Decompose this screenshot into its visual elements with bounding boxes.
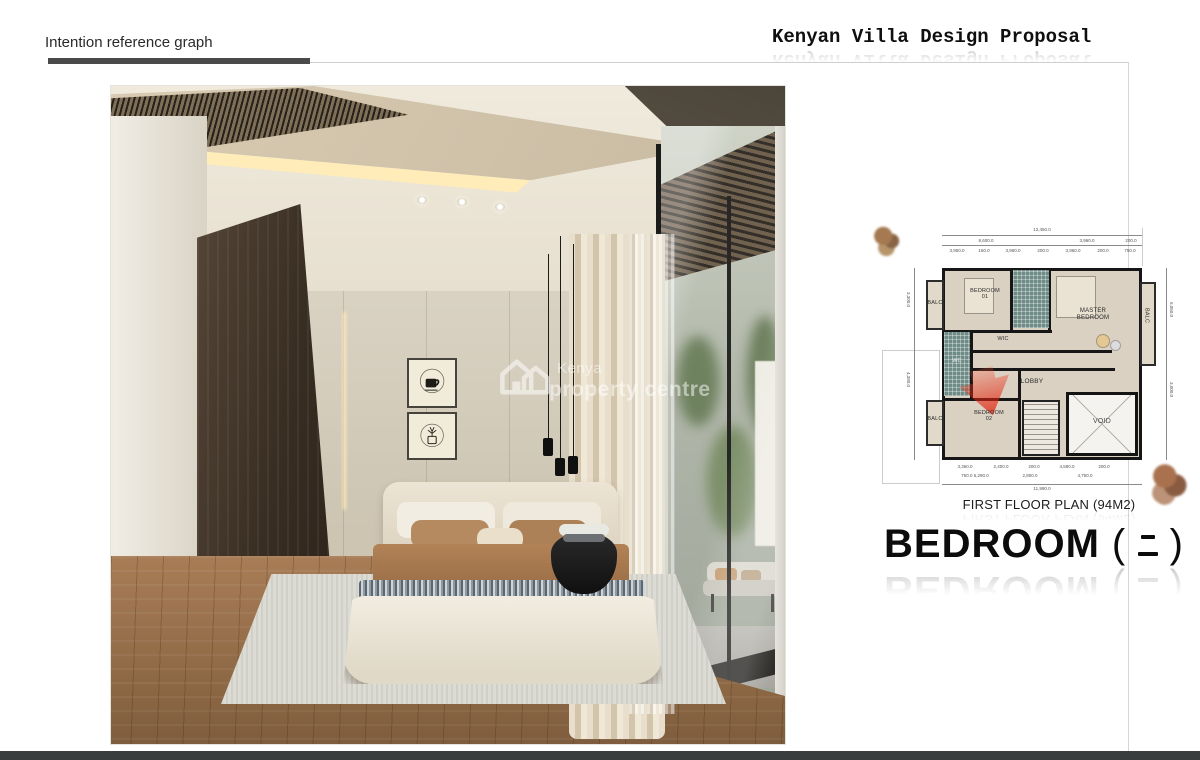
pendant-cord [560, 236, 561, 460]
dimension-line [1166, 268, 1167, 460]
dimension-label: 750.0 5,290.0 [950, 473, 1000, 478]
dimension-label: 200.0 [1090, 248, 1116, 253]
plant-icon [416, 421, 448, 452]
door-mullion [727, 196, 731, 696]
art-frame-plant [407, 412, 457, 460]
pendant-cord [548, 254, 549, 440]
duvet [343, 596, 663, 684]
property-line [1142, 228, 1143, 266]
room-label-master: MASTER BEDROOM [1064, 308, 1122, 322]
room-label-text: 02 [986, 416, 993, 422]
dimension-label: 200.0 [1090, 464, 1118, 469]
room-label-bedroom01: BEDROOM 01 [962, 288, 1008, 301]
dimension-label: 750.0 [1118, 248, 1142, 253]
dimension-label: 3,960.0 [1058, 248, 1088, 253]
paren-close: ) [1170, 567, 1184, 612]
dimension-label: 4,380.0 [906, 372, 911, 387]
dimension-line [914, 268, 915, 460]
dimension-label: 3,950.0 [942, 248, 972, 253]
slide-page: Intention reference graph Kenyan Villa D… [0, 0, 1200, 760]
bench-leg [771, 594, 774, 612]
room-label-bedroom02: BEDROOM 02 [964, 410, 1014, 423]
stairs [1022, 400, 1060, 456]
header-underline-bar [48, 58, 310, 64]
bottom-bar [0, 751, 1200, 760]
hanzi-two-glyph [1138, 575, 1157, 605]
dimension-label: 2,400.0 [984, 464, 1018, 469]
room-label-wic: WIC [982, 336, 1024, 342]
plan-caption: FIRST FLOOR PLAN (94M2) [893, 497, 1200, 512]
main-title: Kenyan Villa Design Proposal [772, 26, 1112, 48]
room-label-wc: WC [944, 358, 970, 364]
room-label-text: BEDROOM [974, 410, 1004, 416]
main-title-reflection: Kenyan Villa Design Proposal [772, 49, 1112, 71]
downlight-icon [495, 203, 505, 211]
bedroom-title-word: BEDROOM [884, 567, 1100, 612]
dimension-label: 6,050.0 [1169, 302, 1174, 317]
coffee-cup-icon [416, 367, 448, 399]
house-icon [497, 354, 551, 400]
table-symbol [1096, 334, 1110, 348]
floor-plan: BALC BEDROOM 01 MASTER BEDROOM BALC WIC … [880, 222, 1180, 514]
dimension-line [942, 245, 1142, 246]
room-label-lobby: LOBBY [1006, 378, 1058, 385]
art-frame-coffee [407, 358, 457, 408]
room-label-text: 01 [982, 294, 989, 300]
pendant-lamp-icon [543, 438, 553, 456]
room-label-balc-bl: BALC [922, 416, 948, 422]
dimension-label: 4,750.0 [1065, 473, 1105, 478]
dimension-label: 4,580.0 [1050, 464, 1084, 469]
led-strip [343, 312, 346, 510]
dimension-label: 3,000.0 [1169, 382, 1174, 397]
paren-open: ( [1112, 567, 1126, 612]
dimension-label: 11,990.0 [992, 486, 1092, 491]
pendant-lamp-icon [568, 456, 578, 474]
room-label-text: MASTER [1080, 308, 1106, 314]
paren-close: ) [1170, 522, 1184, 567]
watermark-line1: Kenya [557, 360, 602, 377]
bedroom-title-reflection: BEDROOM ( ) [884, 567, 1184, 612]
dimension-label: 8,600.0 [956, 238, 1016, 243]
dimension-label: 3,300.0 [906, 292, 911, 307]
interior-render: Kenya property centre [110, 85, 786, 745]
section-label: Intention reference graph [45, 34, 213, 51]
room-label-balc-tl: BALC [922, 300, 948, 306]
dimension-label: 3,360.0 [948, 464, 982, 469]
room-label-text: BEDROOM [970, 288, 1000, 294]
paren-open: ( [1112, 522, 1126, 567]
room-label-void: VOID [1076, 418, 1128, 426]
window-edge [775, 126, 786, 745]
balcony-greenery [707, 426, 759, 536]
downlight-icon [457, 198, 467, 206]
wall-partition [970, 350, 1112, 353]
dimension-label: 3,960.0 [1062, 238, 1112, 243]
downlight-icon [417, 196, 427, 204]
dimension-label: 12,450.0 [992, 227, 1092, 232]
hanzi-two-glyph [1138, 530, 1157, 560]
balcony-bottom-left [926, 400, 944, 446]
dimension-label: 200.0 [1020, 464, 1048, 469]
room-label-text: BEDROOM [1077, 315, 1109, 321]
bedroom-title: BEDROOM ( ) [884, 522, 1184, 567]
towel-stack [563, 534, 605, 542]
dimension-label: 200.0 [1116, 238, 1146, 243]
pendant-cord [573, 244, 574, 458]
watermark-line2: property centre [549, 378, 711, 402]
room-label-balc-right: BALC [1143, 308, 1149, 323]
balcony-right [1140, 282, 1156, 366]
dimension-line [942, 235, 1142, 236]
bedroom-title-word: BEDROOM [884, 522, 1100, 567]
dimension-label: 200.0 [1030, 248, 1056, 253]
dimension-label: 3,960.0 [998, 248, 1028, 253]
pendant-lamp-icon [555, 458, 565, 476]
dimension-label: 2,800.0 [1010, 473, 1050, 478]
table-symbol [1110, 340, 1121, 351]
dimension-label: 150.0 [972, 248, 996, 253]
tree-symbol [872, 224, 904, 258]
bench-leg [711, 594, 714, 612]
dimension-line [942, 484, 1142, 485]
bathroom-tiles [1013, 270, 1049, 328]
